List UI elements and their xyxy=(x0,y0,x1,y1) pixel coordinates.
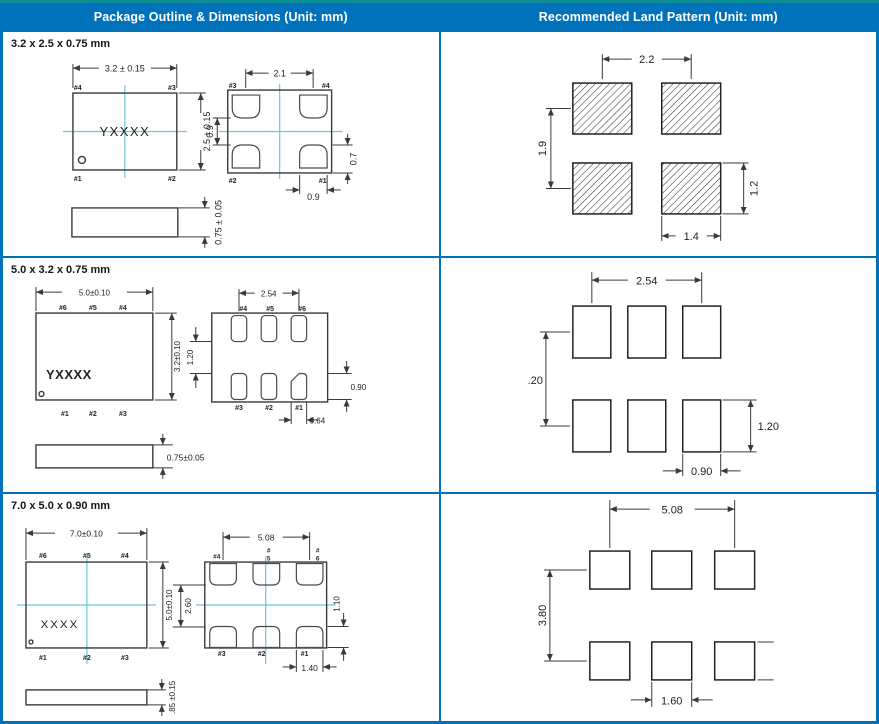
package-body xyxy=(36,313,153,400)
pin-label: #3 xyxy=(229,83,237,90)
dim-label: 3.2 ± 0.15 xyxy=(105,64,145,74)
dim-label: 1.9 xyxy=(536,141,548,156)
dim-pitch-y: .20 xyxy=(527,332,569,426)
pin-label: #1 xyxy=(39,655,47,662)
pin1-indicator xyxy=(29,640,33,644)
pin-label: #3 xyxy=(218,651,226,658)
section-label: 3.2 x 2.5 x 0.75 mm xyxy=(11,38,110,50)
bottom-view: #3 #4 #2 #1 2.1 0.9 xyxy=(205,69,359,202)
pin-label: 6 xyxy=(316,556,320,563)
dim-pitch-x: 2.2 xyxy=(602,54,691,79)
outline-drawing-3225: YXXXX #4 #3 #1 #2 3.2 ± 0.15 xyxy=(3,32,439,256)
pad xyxy=(231,316,246,342)
land-cell-7050: 5.08 3.80 1.60 xyxy=(441,494,877,721)
dim-inner-gap: 2.60 xyxy=(173,585,206,627)
bottom-view: #4 #5 #6 #3 #2 #1 2.54 1. xyxy=(186,289,367,425)
hatched-pad xyxy=(572,83,631,134)
hatched-pad xyxy=(661,163,720,214)
dim-label: 5.08 xyxy=(661,505,682,517)
header-right-label: Recommended Land Pattern (Unit: mm) xyxy=(539,10,778,24)
package-body xyxy=(212,313,328,402)
hatched-pad xyxy=(661,83,720,134)
land-pad xyxy=(627,306,665,358)
dim-label: 3.2±0.10 xyxy=(173,340,182,372)
table-header-land-pattern: Recommended Land Pattern (Unit: mm) xyxy=(441,3,877,30)
pin-label: #4 xyxy=(121,553,129,560)
table-header-package-outline: Package Outline & Dimensions (Unit: mm) xyxy=(3,3,439,30)
pin-label: #6 xyxy=(59,305,67,312)
outline-cell-3225: 3.2 x 2.5 x 0.75 mm YXXXX #4 #3 #1 #2 xyxy=(3,32,439,256)
dim-label: 0.90 xyxy=(351,383,367,392)
pad xyxy=(210,564,237,585)
pin-label: #6 xyxy=(39,553,47,560)
header-left-label: Package Outline & Dimensions (Unit: mm) xyxy=(94,10,348,24)
dim-label: 1.10 xyxy=(333,596,342,612)
pad xyxy=(231,374,246,400)
pad xyxy=(261,316,276,342)
dim-pad-width: 0.90 xyxy=(662,454,740,478)
dim-pad-width: 1.4 xyxy=(661,216,720,243)
dim-label: 1.20 xyxy=(186,349,195,365)
top-view: YXXXX #4 #3 #1 #2 3.2 ± 0.15 xyxy=(63,64,212,183)
dim-thickness-label: 0.75±0.05 xyxy=(167,452,205,462)
dim-label: 2.54 xyxy=(261,290,277,299)
land-cell-5032: 2.54 .20 1.20 0.90 xyxy=(441,258,877,492)
dim-label: 2.1 xyxy=(273,69,285,79)
dim-label: 0.9 xyxy=(307,192,319,202)
marking-text: YXXXX xyxy=(46,367,92,382)
pin-label: #5 xyxy=(89,305,97,312)
pin1-indicator xyxy=(39,391,44,396)
dim-pitch-y: 3.80 xyxy=(536,570,586,661)
package-side xyxy=(26,690,147,705)
dim-pitch-x: 5.08 xyxy=(609,500,734,548)
pad xyxy=(296,564,323,585)
section-label: 7.0 x 5.0 x 0.90 mm xyxy=(11,500,110,512)
outline-cell-7050: 7.0 x 5.0 x 0.90 mm XXXX #6 #5 #4 #1 #2 … xyxy=(3,494,439,721)
bottom-view: #4 # 5 # 6 #3 #2 #1 5.08 xyxy=(196,532,349,673)
hatched-pad xyxy=(572,163,631,214)
marking-text: YXXXX xyxy=(99,124,150,139)
pin-label: #3 xyxy=(168,85,176,92)
pin-label: #4 xyxy=(239,306,247,313)
pin-label: #4 xyxy=(74,85,82,92)
dim-pad-gap: 1.20 xyxy=(186,327,212,388)
dim-pitch-y: 1.9 xyxy=(536,109,570,189)
pin-label: #3 xyxy=(235,405,243,412)
land-pattern-5032: 2.54 .20 1.20 0.90 xyxy=(441,258,877,492)
land-pads xyxy=(572,83,720,214)
dim-pad-height: 0.7 xyxy=(333,134,359,184)
dim-pad-width: 1.60 xyxy=(630,682,712,707)
pin-label: # xyxy=(316,548,320,555)
pad xyxy=(232,95,259,118)
pad xyxy=(296,626,323,647)
datasheet-package-table: Package Outline & Dimensions (Unit: mm) … xyxy=(0,0,879,724)
land-pad xyxy=(651,642,691,680)
dim-label: 3.80 xyxy=(536,605,548,626)
pin-label: #3 xyxy=(121,655,129,662)
dim-label: 0.64 xyxy=(310,416,326,425)
pad xyxy=(210,626,237,647)
pin-label: #3 xyxy=(119,411,127,418)
pin-label: #4 xyxy=(119,305,127,312)
side-view: .85 ±0.15 xyxy=(26,679,177,716)
dim-label: 5.0±0.10 xyxy=(165,589,174,621)
marking-text: XXXX xyxy=(41,619,80,631)
dim-label: 1.2 xyxy=(748,181,760,196)
land-pad xyxy=(627,400,665,452)
outline-drawing-7050: XXXX #6 #5 #4 #1 #2 #3 7.0±0.10 xyxy=(3,494,439,721)
land-pad xyxy=(714,551,754,589)
pin-label: #2 xyxy=(229,178,237,185)
pin-label: #5 xyxy=(83,553,91,560)
dim-label: 2.2 xyxy=(639,54,654,66)
dim-thickness-label: 0.75 ± 0.05 xyxy=(214,200,224,245)
land-pad xyxy=(682,400,720,452)
land-cell-3225: 2.2 1.9 1.2 1.4 xyxy=(441,32,877,256)
dim-pad-height: 1.2 xyxy=(722,163,760,214)
land-pad xyxy=(714,642,754,680)
pad xyxy=(253,626,280,647)
dim-label: 1.40 xyxy=(301,663,318,673)
dim-label: 0.90 xyxy=(691,466,712,478)
side-view: 0.75 ± 0.05 xyxy=(72,197,224,248)
pad xyxy=(253,564,280,585)
dim-label: 0.7 xyxy=(349,153,359,165)
pin-label: #2 xyxy=(258,651,266,658)
outline-cell-5032: 5.0 x 3.2 x 0.75 mm YXXXX #6 #5 #4 #1 #2… xyxy=(3,258,439,492)
pin-label: # xyxy=(267,548,271,555)
pin-label: #1 xyxy=(301,651,309,658)
dim-pad-width: 1.40 xyxy=(283,650,337,673)
land-pads xyxy=(572,306,720,452)
dim-pad-height: 0.90 xyxy=(328,361,367,412)
dim-label: 2.54 xyxy=(636,276,657,288)
dim-label: 1.60 xyxy=(661,695,682,707)
pin-label: #6 xyxy=(298,306,306,313)
pin-label: 5 xyxy=(267,556,271,563)
top-view: XXXX #6 #5 #4 #1 #2 #3 7.0±0.10 xyxy=(17,528,206,664)
pin1-indicator xyxy=(78,156,85,163)
land-pad xyxy=(572,400,610,452)
land-pattern-3225: 2.2 1.9 1.2 1.4 xyxy=(441,32,877,256)
package-side xyxy=(36,445,153,468)
dim-label: 5.08 xyxy=(258,533,275,543)
pin-label: #5 xyxy=(266,306,274,313)
dim-thickness-label: .85 ±0.15 xyxy=(168,680,177,714)
top-view: YXXXX #6 #5 #4 #1 #2 #3 5.0±0.10 xyxy=(36,287,182,418)
dim-label: .20 xyxy=(527,375,542,387)
package-side xyxy=(72,208,178,237)
pad xyxy=(291,316,306,342)
pin-label: #1 xyxy=(319,178,327,185)
land-pad xyxy=(589,642,629,680)
dim-label: 1.20 xyxy=(757,421,778,433)
dim-label: 0.9 xyxy=(205,125,215,137)
pin-label: #1 xyxy=(295,405,303,412)
pin-label: #4 xyxy=(322,83,330,90)
dim-height: 3.2±0.10 xyxy=(155,313,182,400)
pad xyxy=(232,145,259,168)
dim-pad-width: 0.9 xyxy=(286,175,341,202)
dim-label: 7.0±0.10 xyxy=(70,529,103,539)
pin-label: #2 xyxy=(89,411,97,418)
side-view: 0.75±0.05 xyxy=(36,434,205,479)
pin-label: #2 xyxy=(265,405,273,412)
pad xyxy=(261,374,276,400)
dim-label: 1.4 xyxy=(683,231,698,243)
section-label: 5.0 x 3.2 x 0.75 mm xyxy=(11,264,110,276)
pad xyxy=(300,95,327,118)
pad xyxy=(300,145,327,168)
land-pads xyxy=(589,551,773,680)
pin-label: #2 xyxy=(168,176,176,183)
dim-pitch-x: 2.54 xyxy=(591,272,701,303)
land-pattern-7050: 5.08 3.80 1.60 xyxy=(441,494,877,721)
land-pad xyxy=(682,306,720,358)
land-pad xyxy=(651,551,691,589)
dim-pad-height: 1.20 xyxy=(722,400,778,452)
outline-drawing-5032: YXXXX #6 #5 #4 #1 #2 #3 5.0±0.10 xyxy=(3,258,439,492)
land-pad xyxy=(589,551,629,589)
pad-1-chamfered xyxy=(291,374,306,400)
pin-label: #4 xyxy=(213,554,221,561)
dim-label: 5.0±0.10 xyxy=(79,289,111,298)
pin-label: #1 xyxy=(74,176,82,183)
dim-width: 3.2 ± 0.15 xyxy=(73,64,177,88)
land-pad xyxy=(572,306,610,358)
dim-label: 2.60 xyxy=(184,598,193,614)
pin-label: #2 xyxy=(83,655,91,662)
pin-label: #1 xyxy=(61,411,69,418)
